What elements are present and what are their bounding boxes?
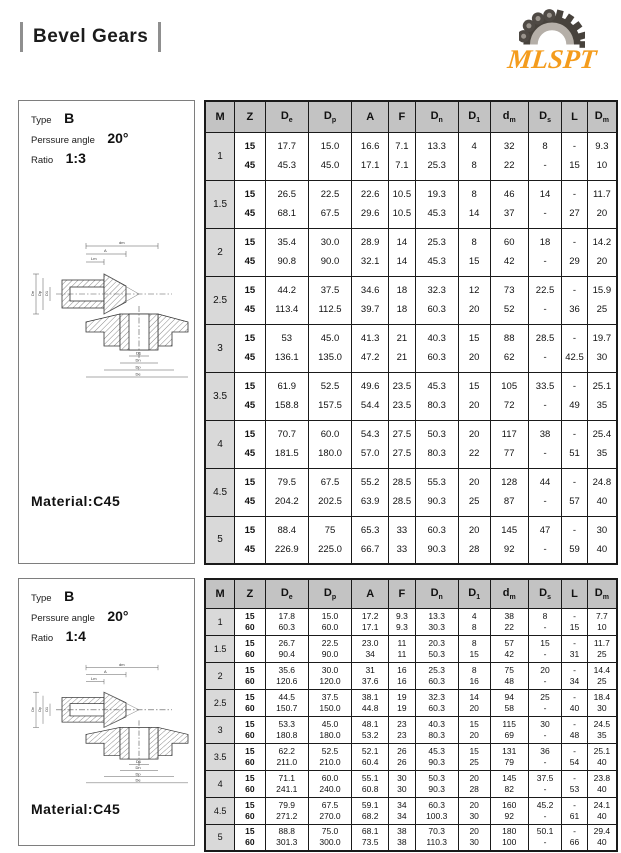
module-cell: 5 <box>205 516 235 564</box>
value-cell: 32.360.3 <box>415 689 458 716</box>
catalog-page: Bevel Gears MLSPT Typ <box>0 0 621 853</box>
teeth-count-cell: 1560 <box>235 797 265 824</box>
column-header-f: F <box>389 101 415 132</box>
value-cell: 61.9158.8 <box>265 372 308 420</box>
value-cell: 37.5112.5 <box>308 276 351 324</box>
module-cell: 2.5 <box>205 689 235 716</box>
value-cell: 7548 <box>490 662 528 689</box>
value-cell: 23.523.5 <box>389 372 415 420</box>
table-row: 3.5154561.9158.852.5157.549.654.423.523.… <box>205 372 617 420</box>
column-header-a: A <box>352 101 389 132</box>
column-header-dp: Dp <box>308 579 351 608</box>
value-cell: 33.5- <box>528 372 561 420</box>
value-cell: 25.360.3 <box>415 662 458 689</box>
value-cell: 45.2- <box>528 797 561 824</box>
value-cell: 44.2113.4 <box>265 276 308 324</box>
value-cell: 17.860.3 <box>265 608 308 635</box>
dim-label-a: A <box>104 670 107 674</box>
spec-block: Type B Perssure angle 20° Ratio 1:4 <box>31 589 129 649</box>
value-cell: -48 <box>562 716 588 743</box>
value-cell: 48 <box>458 608 490 635</box>
value-cell: 9458 <box>490 689 528 716</box>
type-label: Type <box>31 115 52 126</box>
value-cell: 12887 <box>490 468 528 516</box>
table-row: 2.5156044.5150.737.5150.038.144.8191932.… <box>205 689 617 716</box>
table-row: 2156035.6120.630.0120.03137.6161625.360.… <box>205 662 617 689</box>
value-cell: -59 <box>562 516 588 564</box>
value-cell: 52.160.4 <box>352 743 389 770</box>
title-left-bar <box>20 22 23 52</box>
table-row: 1154517.745.315.045.016.617.17.17.113.32… <box>205 132 617 180</box>
value-cell: 44- <box>528 468 561 516</box>
value-cell: 1420 <box>458 689 490 716</box>
value-cell: 65.366.7 <box>352 516 389 564</box>
value-cell: 1220 <box>458 276 490 324</box>
table-row: 4.5154579.5204.267.5202.555.263.928.528.… <box>205 468 617 516</box>
value-cell: 1520 <box>458 716 490 743</box>
dim-label-dp: Dp <box>136 365 142 370</box>
table-row: 5156088.8301.375.0300.068.173.5383870.31… <box>205 824 617 851</box>
value-cell: 36- <box>528 743 561 770</box>
column-header-de: De <box>265 101 308 132</box>
value-cell: 6042 <box>490 228 528 276</box>
ratio-value: 1:3 <box>66 150 86 166</box>
module-cell: 1 <box>205 608 235 635</box>
value-cell: 3137.6 <box>352 662 389 689</box>
value-cell: 22.567.5 <box>308 180 351 228</box>
value-cell: 2025 <box>458 468 490 516</box>
column-header-d1: D1 <box>458 579 490 608</box>
value-cell: 10572 <box>490 372 528 420</box>
dim-label-lm: Lm <box>91 256 97 261</box>
dim-label-d1-left: D1 <box>44 290 49 296</box>
module-cell: 2.5 <box>205 276 235 324</box>
column-header-ds: Ds <box>528 101 561 132</box>
value-cell: 180100 <box>490 824 528 851</box>
teeth-count-cell: 1545 <box>235 276 265 324</box>
value-cell: 67.5202.5 <box>308 468 351 516</box>
teeth-count-cell: 1545 <box>235 372 265 420</box>
value-cell: 22.5- <box>528 276 561 324</box>
value-cell: 37.5- <box>528 770 561 797</box>
value-cell: 50.380.3 <box>415 420 458 468</box>
value-cell: 35.6120.6 <box>265 662 308 689</box>
value-cell: 3030 <box>389 770 415 797</box>
value-cell: 18.430 <box>587 689 617 716</box>
bevel-gear-drawing: dm A Lm De Dp D1 D1 Dn Dp De <box>22 657 192 789</box>
value-cell: 79.9271.2 <box>265 797 308 824</box>
value-cell: -40 <box>562 689 588 716</box>
column-header-z: Z <box>235 101 265 132</box>
value-cell: 29.440 <box>587 824 617 851</box>
value-cell: 50.1- <box>528 824 561 851</box>
module-cell: 4 <box>205 770 235 797</box>
value-cell: 11777 <box>490 420 528 468</box>
value-cell: 45.0180.0 <box>308 716 351 743</box>
value-cell: 22.590.0 <box>308 635 351 662</box>
value-cell: 59.168.2 <box>352 797 389 824</box>
value-cell: 25.135 <box>587 372 617 420</box>
value-cell: 2323 <box>389 716 415 743</box>
column-header-ds: Ds <box>528 579 561 608</box>
value-cell: 2022 <box>458 420 490 468</box>
type-value: B <box>64 588 74 604</box>
page-header: Bevel Gears <box>20 22 161 52</box>
value-cell: 62.2211.0 <box>265 743 308 770</box>
bevel-gear-drawing: dm A Lm De Dp D1 D1 Dn Dp De <box>22 234 192 384</box>
value-cell: -42.5 <box>562 324 588 372</box>
table-row: 1.5156026.790.422.590.023.034111120.350.… <box>205 635 617 662</box>
value-cell: 48 <box>458 132 490 180</box>
dim-label-de-left: De <box>31 707 35 711</box>
value-cell: 25.435 <box>587 420 617 468</box>
table-row: 2.5154544.2113.437.5112.534.639.7181832.… <box>205 276 617 324</box>
module-cell: 3 <box>205 324 235 372</box>
value-cell: 75225.0 <box>308 516 351 564</box>
column-header-dn: Dn <box>415 101 458 132</box>
value-cell: 45.390.3 <box>415 743 458 770</box>
value-cell: 48.153.2 <box>352 716 389 743</box>
value-cell: 27.527.5 <box>389 420 415 468</box>
table-row: 1156017.860.315.060.017.217.19.39.313.33… <box>205 608 617 635</box>
column-header-z: Z <box>235 579 265 608</box>
value-cell: 3222 <box>490 132 528 180</box>
value-cell: 1525 <box>458 743 490 770</box>
value-cell: 25- <box>528 689 561 716</box>
value-cell: 2121 <box>389 324 415 372</box>
module-cell: 5 <box>205 824 235 851</box>
value-cell: 3838 <box>389 824 415 851</box>
pressure-angle-value: 20° <box>107 130 128 146</box>
table-row: 4154570.7181.560.0180.054.357.027.527.55… <box>205 420 617 468</box>
column-header-m: M <box>205 101 235 132</box>
value-cell: 45.380.3 <box>415 372 458 420</box>
dim-label-de: De <box>136 372 142 377</box>
value-cell: 23.840 <box>587 770 617 797</box>
value-cell: 71.1241.1 <box>265 770 308 797</box>
table-row: 2154535.490.830.090.028.932.1141425.345.… <box>205 228 617 276</box>
value-cell: 7.710 <box>587 608 617 635</box>
dim-label-de-left: De <box>30 290 35 296</box>
value-cell: 75.0300.0 <box>308 824 351 851</box>
value-cell: 10.510.5 <box>389 180 415 228</box>
spec-panel-ratio-1-3: Type B Perssure angle 20° Ratio 1:3 <box>18 100 195 564</box>
dim-label-dn: Dn <box>136 766 141 770</box>
value-cell: -49 <box>562 372 588 420</box>
value-cell: 60.0240.0 <box>308 770 351 797</box>
value-cell: -15 <box>562 608 588 635</box>
module-cell: 4.5 <box>205 468 235 516</box>
dim-label-dp-left: Dp <box>37 290 42 296</box>
value-cell: 26.790.4 <box>265 635 308 662</box>
value-cell: 54.357.0 <box>352 420 389 468</box>
value-cell: 11.720 <box>587 180 617 228</box>
value-cell: 18- <box>528 228 561 276</box>
value-cell: -29 <box>562 228 588 276</box>
ratio-label: Ratio <box>31 633 53 644</box>
module-cell: 1.5 <box>205 635 235 662</box>
header-row: MZDeDpAFDnD1dmDsLDm <box>205 579 617 608</box>
pressure-angle-label: Perssure angle <box>31 135 95 146</box>
value-cell: 28.5- <box>528 324 561 372</box>
value-cell: 23.034 <box>352 635 389 662</box>
value-cell: 67.5270.0 <box>308 797 351 824</box>
column-header-dm: dm <box>490 579 528 608</box>
value-cell: 50.390.3 <box>415 770 458 797</box>
dim-label-dp: Dp <box>136 773 141 777</box>
value-cell: 44.5150.7 <box>265 689 308 716</box>
value-cell: 28.528.5 <box>389 468 415 516</box>
column-header-l: L <box>562 101 588 132</box>
column-header-d1: D1 <box>458 101 490 132</box>
value-cell: 88.8301.3 <box>265 824 308 851</box>
value-cell: 11569 <box>490 716 528 743</box>
value-cell: 13.325.3 <box>415 132 458 180</box>
value-cell: 53136.1 <box>265 324 308 372</box>
value-cell: 13179 <box>490 743 528 770</box>
value-cell: 30- <box>528 716 561 743</box>
dim-label-de: De <box>136 779 141 783</box>
column-header-a: A <box>352 579 389 608</box>
value-cell: 41.347.2 <box>352 324 389 372</box>
value-cell: -54 <box>562 743 588 770</box>
value-cell: 24.535 <box>587 716 617 743</box>
value-cell: -15 <box>562 132 588 180</box>
value-cell: 17.217.1 <box>352 608 389 635</box>
value-cell: 19.730 <box>587 324 617 372</box>
value-cell: 1520 <box>458 372 490 420</box>
brand-name: MLSPT <box>496 46 609 73</box>
value-cell: 3333 <box>389 516 415 564</box>
teeth-count-cell: 1545 <box>235 180 265 228</box>
pressure-angle-label: Perssure angle <box>31 613 95 624</box>
teeth-count-cell: 1545 <box>235 468 265 516</box>
ratio-label: Ratio <box>31 155 53 166</box>
value-cell: 79.5204.2 <box>265 468 308 516</box>
header-row: MZDeDpAFDnD1dmDsLDm <box>205 101 617 132</box>
module-cell: 3 <box>205 716 235 743</box>
title-right-bar <box>158 22 161 52</box>
teeth-count-cell: 1545 <box>235 324 265 372</box>
value-cell: 17.745.3 <box>265 132 308 180</box>
module-cell: 4 <box>205 420 235 468</box>
value-cell: 52.5210.0 <box>308 743 351 770</box>
value-cell: 814 <box>458 180 490 228</box>
column-header-m: M <box>205 579 235 608</box>
module-cell: 1 <box>205 132 235 180</box>
column-header-f: F <box>389 579 415 608</box>
value-cell: 32.360.3 <box>415 276 458 324</box>
value-cell: 3434 <box>389 797 415 824</box>
module-cell: 4.5 <box>205 797 235 824</box>
teeth-count-cell: 1560 <box>235 743 265 770</box>
value-cell: 40.360.3 <box>415 324 458 372</box>
value-cell: 24.140 <box>587 797 617 824</box>
value-cell: 1520 <box>458 324 490 372</box>
value-cell: 815 <box>458 635 490 662</box>
value-cell: 1111 <box>389 635 415 662</box>
value-cell: 25.345.3 <box>415 228 458 276</box>
value-cell: 15.045.0 <box>308 132 351 180</box>
table-row: 3.5156062.2211.052.5210.052.160.4262645.… <box>205 743 617 770</box>
table-row: 3154553136.145.0135.041.347.2212140.360.… <box>205 324 617 372</box>
value-cell: 30.090.0 <box>308 228 351 276</box>
value-cell: 3822 <box>490 608 528 635</box>
teeth-count-cell: 1545 <box>235 132 265 180</box>
value-cell: 34.639.7 <box>352 276 389 324</box>
teeth-count-cell: 1560 <box>235 770 265 797</box>
dim-label-a: A <box>104 248 107 253</box>
module-cell: 1.5 <box>205 180 235 228</box>
dim-label-lm: Lm <box>91 677 97 681</box>
gear-table-ratio-1-3: MZDeDpAFDnD1dmDsLDm1154517.745.315.045.0… <box>204 100 618 565</box>
value-cell: 25.140 <box>587 743 617 770</box>
value-cell: 13.330.3 <box>415 608 458 635</box>
spec-type: Type B <box>31 111 129 128</box>
value-cell: 60.390.3 <box>415 516 458 564</box>
value-cell: 14.425 <box>587 662 617 689</box>
value-cell: 14582 <box>490 770 528 797</box>
value-cell: 52.5157.5 <box>308 372 351 420</box>
value-cell: 47- <box>528 516 561 564</box>
module-cell: 2 <box>205 662 235 689</box>
teeth-count-cell: 1545 <box>235 516 265 564</box>
teeth-count-cell: 1560 <box>235 662 265 689</box>
value-cell: 4637 <box>490 180 528 228</box>
spec-type: Type B <box>31 589 129 606</box>
page-title: Bevel Gears <box>33 26 148 48</box>
spec-pressure-angle: Perssure angle 20° <box>31 131 129 148</box>
value-cell: 2030 <box>458 824 490 851</box>
value-cell: -66 <box>562 824 588 851</box>
value-cell: 24.840 <box>587 468 617 516</box>
column-header-dm: dm <box>490 101 528 132</box>
value-cell: 1414 <box>389 228 415 276</box>
brand-logo: MLSPT <box>497 8 607 86</box>
gear-table-ratio-1-4: MZDeDpAFDnD1dmDsLDm1156017.860.315.060.0… <box>204 578 618 852</box>
value-cell: 35.490.8 <box>265 228 308 276</box>
value-cell: 88.4226.9 <box>265 516 308 564</box>
value-cell: -31 <box>562 635 588 662</box>
value-cell: 20- <box>528 662 561 689</box>
value-cell: 20.350.3 <box>415 635 458 662</box>
value-cell: -27 <box>562 180 588 228</box>
dim-label-d1-left: D1 <box>45 707 49 711</box>
spec-panel-ratio-1-4: Type B Perssure angle 20° Ratio 1:4 <box>18 578 195 846</box>
value-cell: 9.39.3 <box>389 608 415 635</box>
material-label: Material:C45 <box>31 801 120 817</box>
value-cell: 37.5150.0 <box>308 689 351 716</box>
value-cell: 7352 <box>490 276 528 324</box>
value-cell: 14- <box>528 180 561 228</box>
ratio-value: 1:4 <box>66 628 86 644</box>
value-cell: 15.925 <box>587 276 617 324</box>
value-cell: 3040 <box>587 516 617 564</box>
dim-label-dm: dm <box>119 663 125 667</box>
value-cell: 16092 <box>490 797 528 824</box>
dim-label-dp-left: Dp <box>38 707 42 711</box>
pressure-angle-value: 20° <box>107 608 128 624</box>
spec-block: Type B Perssure angle 20° Ratio 1:3 <box>31 111 129 171</box>
value-cell: 1919 <box>389 689 415 716</box>
value-cell: 815 <box>458 228 490 276</box>
value-cell: 45.0135.0 <box>308 324 351 372</box>
value-cell: 19.345.3 <box>415 180 458 228</box>
value-cell: 55.263.9 <box>352 468 389 516</box>
column-header-dp: Dp <box>308 101 351 132</box>
value-cell: 2030 <box>458 797 490 824</box>
value-cell: -34 <box>562 662 588 689</box>
value-cell: 60.0180.0 <box>308 420 351 468</box>
gear-chain-icon <box>519 8 585 48</box>
value-cell: 8- <box>528 608 561 635</box>
value-cell: 68.173.5 <box>352 824 389 851</box>
value-cell: 26.568.1 <box>265 180 308 228</box>
table-row: 3156053.3180.845.0180.048.153.2232340.38… <box>205 716 617 743</box>
value-cell: -51 <box>562 420 588 468</box>
value-cell: 49.654.4 <box>352 372 389 420</box>
value-cell: 1818 <box>389 276 415 324</box>
value-cell: 28.932.1 <box>352 228 389 276</box>
table-row: 1.5154526.568.122.567.522.629.610.510.51… <box>205 180 617 228</box>
teeth-count-cell: 1560 <box>235 608 265 635</box>
dim-label-d1: D1 <box>136 351 142 356</box>
value-cell: 14592 <box>490 516 528 564</box>
value-cell: 8- <box>528 132 561 180</box>
value-cell: -53 <box>562 770 588 797</box>
table-row: 4156071.1241.160.0240.055.160.8303050.39… <box>205 770 617 797</box>
table-row: 5154588.4226.975225.065.366.7333360.390.… <box>205 516 617 564</box>
value-cell: 22.629.6 <box>352 180 389 228</box>
value-cell: 70.3110.3 <box>415 824 458 851</box>
value-cell: 30.0120.0 <box>308 662 351 689</box>
value-cell: 16.617.1 <box>352 132 389 180</box>
teeth-count-cell: 1545 <box>235 228 265 276</box>
value-cell: 38.144.8 <box>352 689 389 716</box>
value-cell: 816 <box>458 662 490 689</box>
module-cell: 2 <box>205 228 235 276</box>
spec-pressure-angle: Perssure angle 20° <box>31 609 129 626</box>
teeth-count-cell: 1545 <box>235 420 265 468</box>
value-cell: 7.17.1 <box>389 132 415 180</box>
dim-label-dn: Dn <box>136 358 141 363</box>
value-cell: 38- <box>528 420 561 468</box>
dim-label-dm: dm <box>119 240 125 245</box>
value-cell: 11.725 <box>587 635 617 662</box>
column-header-l: L <box>562 579 588 608</box>
value-cell: 2626 <box>389 743 415 770</box>
value-cell: 70.7181.5 <box>265 420 308 468</box>
spec-ratio: Ratio 1:4 <box>31 629 129 646</box>
material-label: Material:C45 <box>31 493 120 509</box>
value-cell: 2028 <box>458 516 490 564</box>
value-cell: 15.060.0 <box>308 608 351 635</box>
value-cell: 14.220 <box>587 228 617 276</box>
value-cell: 55.160.8 <box>352 770 389 797</box>
value-cell: 55.390.3 <box>415 468 458 516</box>
module-cell: 3.5 <box>205 743 235 770</box>
table-row: 4.5156079.9271.267.5270.059.168.2343460.… <box>205 797 617 824</box>
value-cell: 60.3100.3 <box>415 797 458 824</box>
type-value: B <box>64 110 74 126</box>
value-cell: -61 <box>562 797 588 824</box>
teeth-count-cell: 1560 <box>235 824 265 851</box>
column-header-dm: Dm <box>587 101 617 132</box>
value-cell: 40.380.3 <box>415 716 458 743</box>
column-header-dn: Dn <box>415 579 458 608</box>
module-cell: 3.5 <box>205 372 235 420</box>
value-cell: -36 <box>562 276 588 324</box>
